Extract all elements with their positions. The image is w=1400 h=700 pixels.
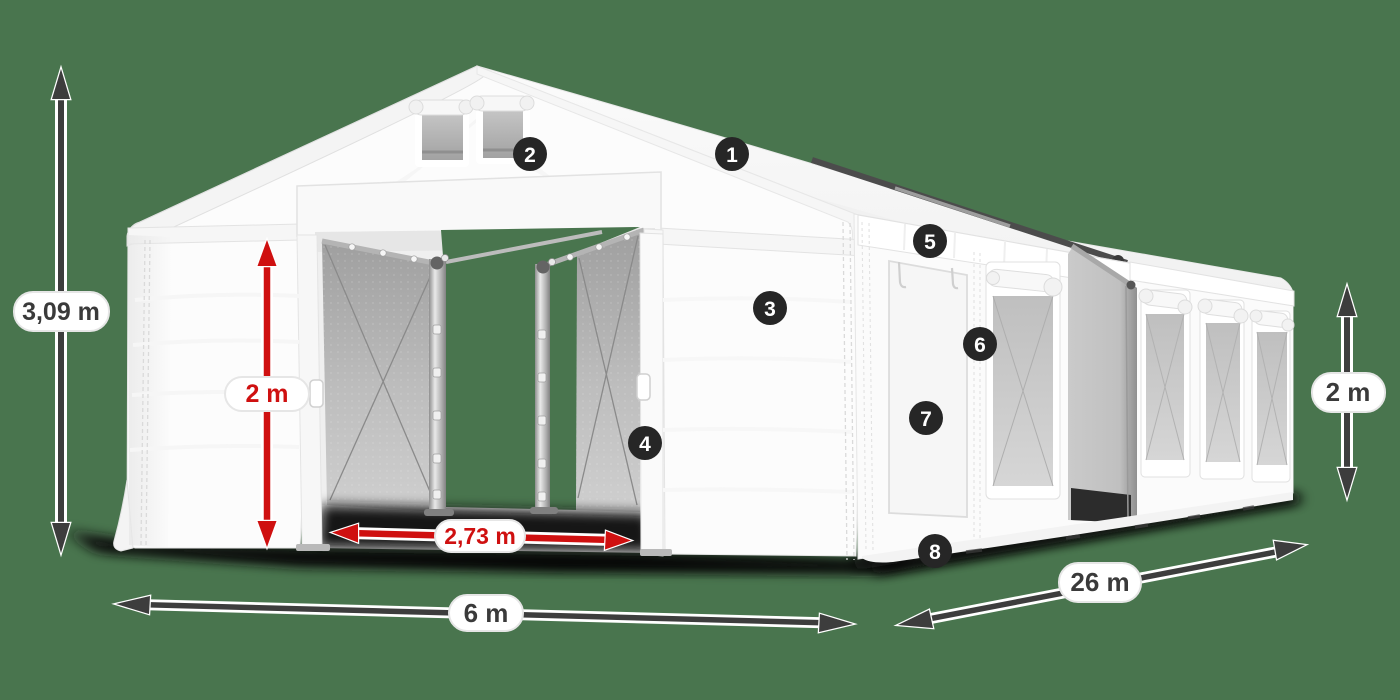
svg-text:3,09 m: 3,09 m — [22, 298, 100, 326]
svg-text:6 m: 6 m — [464, 598, 509, 628]
svg-text:2 m: 2 m — [1326, 377, 1371, 407]
svg-text:3: 3 — [764, 298, 776, 321]
svg-text:6: 6 — [974, 334, 986, 357]
svg-text:8: 8 — [929, 541, 941, 564]
svg-text:2,73 m: 2,73 m — [444, 523, 516, 549]
svg-text:2: 2 — [524, 144, 536, 167]
svg-text:26 m: 26 m — [1070, 567, 1129, 597]
svg-text:4: 4 — [639, 433, 651, 456]
svg-text:2 m: 2 m — [245, 380, 288, 408]
svg-text:1: 1 — [726, 144, 738, 167]
svg-text:7: 7 — [920, 408, 932, 431]
svg-text:5: 5 — [924, 231, 936, 254]
